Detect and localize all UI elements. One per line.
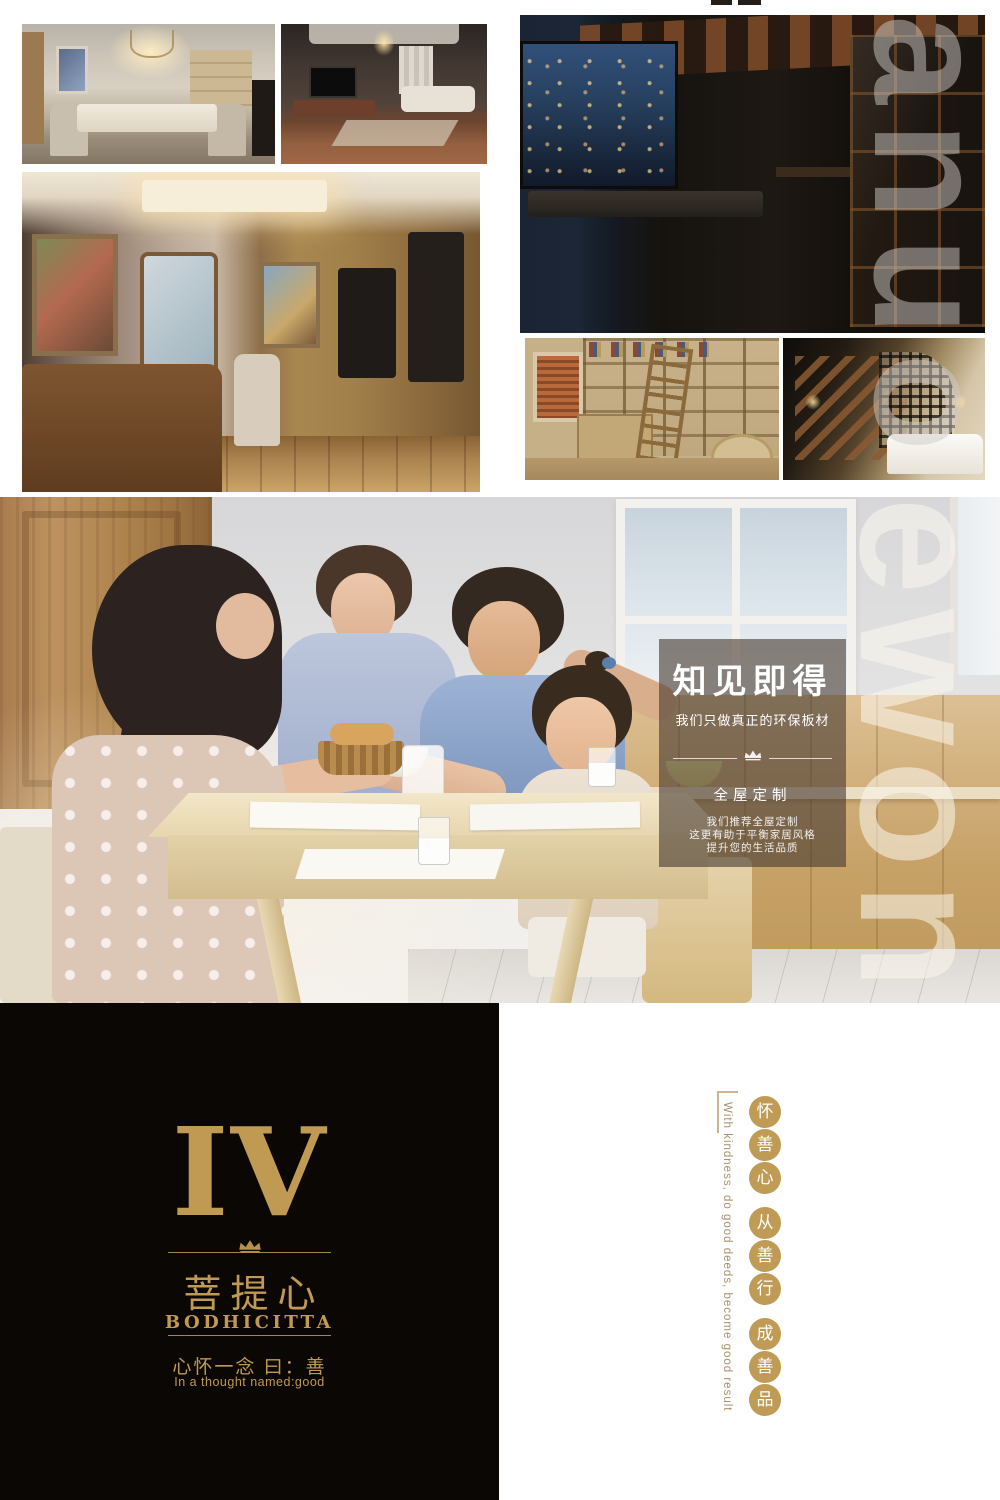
brochure-page: 知见即得 我们只做真正的环保板材 全屋定制 我们推荐全屋定制 这更有助于平衡家居… bbox=[0, 0, 1000, 1500]
dining-table-shape bbox=[77, 104, 217, 132]
photo-living-room bbox=[281, 24, 487, 164]
slogan-char: 怀 bbox=[749, 1096, 781, 1128]
photo-family-breakfast bbox=[0, 497, 1000, 1003]
placemat-shape bbox=[470, 802, 640, 831]
glass-cabinet-shape bbox=[850, 35, 985, 327]
brand-watermark: uads bbox=[843, 1018, 1000, 1463]
wall-lamp-glow bbox=[951, 394, 967, 410]
overlay-text-panel: 知见即得 我们只做真正的环保板材 全屋定制 我们推荐全屋定制 这更有助于平衡家居… bbox=[659, 639, 846, 867]
slogan-char: 成 bbox=[749, 1318, 781, 1350]
wall-lamp-glow bbox=[805, 394, 821, 410]
slogan-char: 从 bbox=[749, 1207, 781, 1239]
night-window-shape bbox=[520, 41, 678, 189]
console-table-shape bbox=[776, 167, 856, 177]
placemat-shape bbox=[295, 849, 505, 879]
slogan-char: 善 bbox=[749, 1240, 781, 1272]
placemat-shape bbox=[250, 802, 420, 831]
slogan-english-vertical: With kindness, do good deeds, become goo… bbox=[721, 1102, 733, 1411]
figure-father-face bbox=[468, 601, 540, 681]
slogan-char: 善 bbox=[749, 1351, 781, 1383]
photo-loft-bedroom bbox=[783, 338, 985, 480]
photo-walk-in-wardrobe bbox=[22, 172, 480, 492]
panel-line: 提升您的生活品质 bbox=[659, 842, 846, 855]
window-bench-shape bbox=[528, 191, 763, 217]
hanging-clothes-shape bbox=[338, 268, 396, 378]
slogan-char: 善 bbox=[749, 1129, 781, 1161]
chapter-title-cn: 菩提心 bbox=[0, 1263, 499, 1318]
mirror-shape bbox=[140, 252, 218, 380]
sofa-shape bbox=[401, 86, 475, 112]
chapter-title-en: BODHICITTA bbox=[0, 1312, 499, 1333]
panel-line: 这更有助于平衡家居风格 bbox=[659, 829, 846, 842]
crown-icon bbox=[743, 749, 763, 767]
milk-glass-shape bbox=[588, 747, 616, 787]
photo-night-hallway bbox=[520, 15, 985, 333]
panel-title: 知见即得 bbox=[659, 664, 846, 701]
photo-study-bookshelves bbox=[525, 338, 779, 480]
milk-glass-shape bbox=[418, 817, 450, 865]
chapter-block: IV 菩提心 BODHICITTA 心怀一念 曰：善 In a thought … bbox=[0, 1003, 499, 1500]
chapter-divider bbox=[168, 1252, 331, 1253]
panel-subtitle: 我们只做真正的环保板材 bbox=[659, 710, 846, 729]
tv-cabinet-shape bbox=[293, 100, 375, 116]
divider-line bbox=[769, 758, 833, 759]
chapter-motto-en: In a thought named:good bbox=[0, 1375, 499, 1389]
chapter-divider bbox=[168, 1335, 331, 1336]
cove-light-shape bbox=[142, 180, 327, 212]
slogan-char: 行 bbox=[749, 1273, 781, 1305]
chandelier-icon bbox=[130, 30, 174, 58]
door-shape bbox=[22, 32, 44, 144]
slogan-char: 品 bbox=[749, 1384, 781, 1416]
rug-shape bbox=[331, 120, 458, 146]
slogan-char: 心 bbox=[749, 1162, 781, 1194]
slogan-group: 怀 善 心 bbox=[749, 1096, 781, 1194]
hanging-clothes-shape bbox=[408, 232, 464, 382]
slogan-circles: 怀 善 心 从 善 行 成 善 品 bbox=[749, 1096, 781, 1429]
chapter-numeral: IV bbox=[0, 1111, 499, 1233]
doorway-shape bbox=[950, 497, 1000, 675]
crown-icon bbox=[237, 1239, 263, 1259]
dresser-shape bbox=[22, 364, 222, 492]
panel-line: 我们推荐全屋定制 bbox=[659, 816, 846, 829]
slogan-group: 成 善 品 bbox=[749, 1318, 781, 1416]
panel-section-title: 全屋定制 bbox=[659, 784, 846, 805]
divider-line bbox=[673, 758, 737, 759]
wall-art-shape bbox=[56, 46, 88, 94]
figure-daughter-face bbox=[216, 593, 274, 659]
pendant-light-glow bbox=[373, 30, 395, 56]
wall-art-shape bbox=[260, 262, 320, 348]
slogan-group: 从 善 行 bbox=[749, 1207, 781, 1305]
bread-basket-shape bbox=[318, 741, 404, 775]
tv-shape bbox=[309, 66, 357, 98]
piano-shape bbox=[252, 80, 275, 156]
page-corner-tab bbox=[738, 0, 761, 5]
cabinet-shape bbox=[190, 50, 252, 106]
floor-shape bbox=[525, 458, 779, 480]
photo-dining-room bbox=[22, 24, 275, 164]
window-mullion bbox=[625, 616, 847, 624]
blinds-window-shape bbox=[533, 352, 583, 422]
wall-art-shape bbox=[32, 234, 118, 356]
page-corner-tab bbox=[711, 0, 732, 5]
bread-shape bbox=[330, 723, 394, 745]
chair-shape bbox=[234, 354, 280, 446]
figure-toddler-scrunchie bbox=[602, 657, 616, 669]
panel-divider bbox=[673, 749, 832, 767]
bed-shape bbox=[887, 434, 983, 474]
